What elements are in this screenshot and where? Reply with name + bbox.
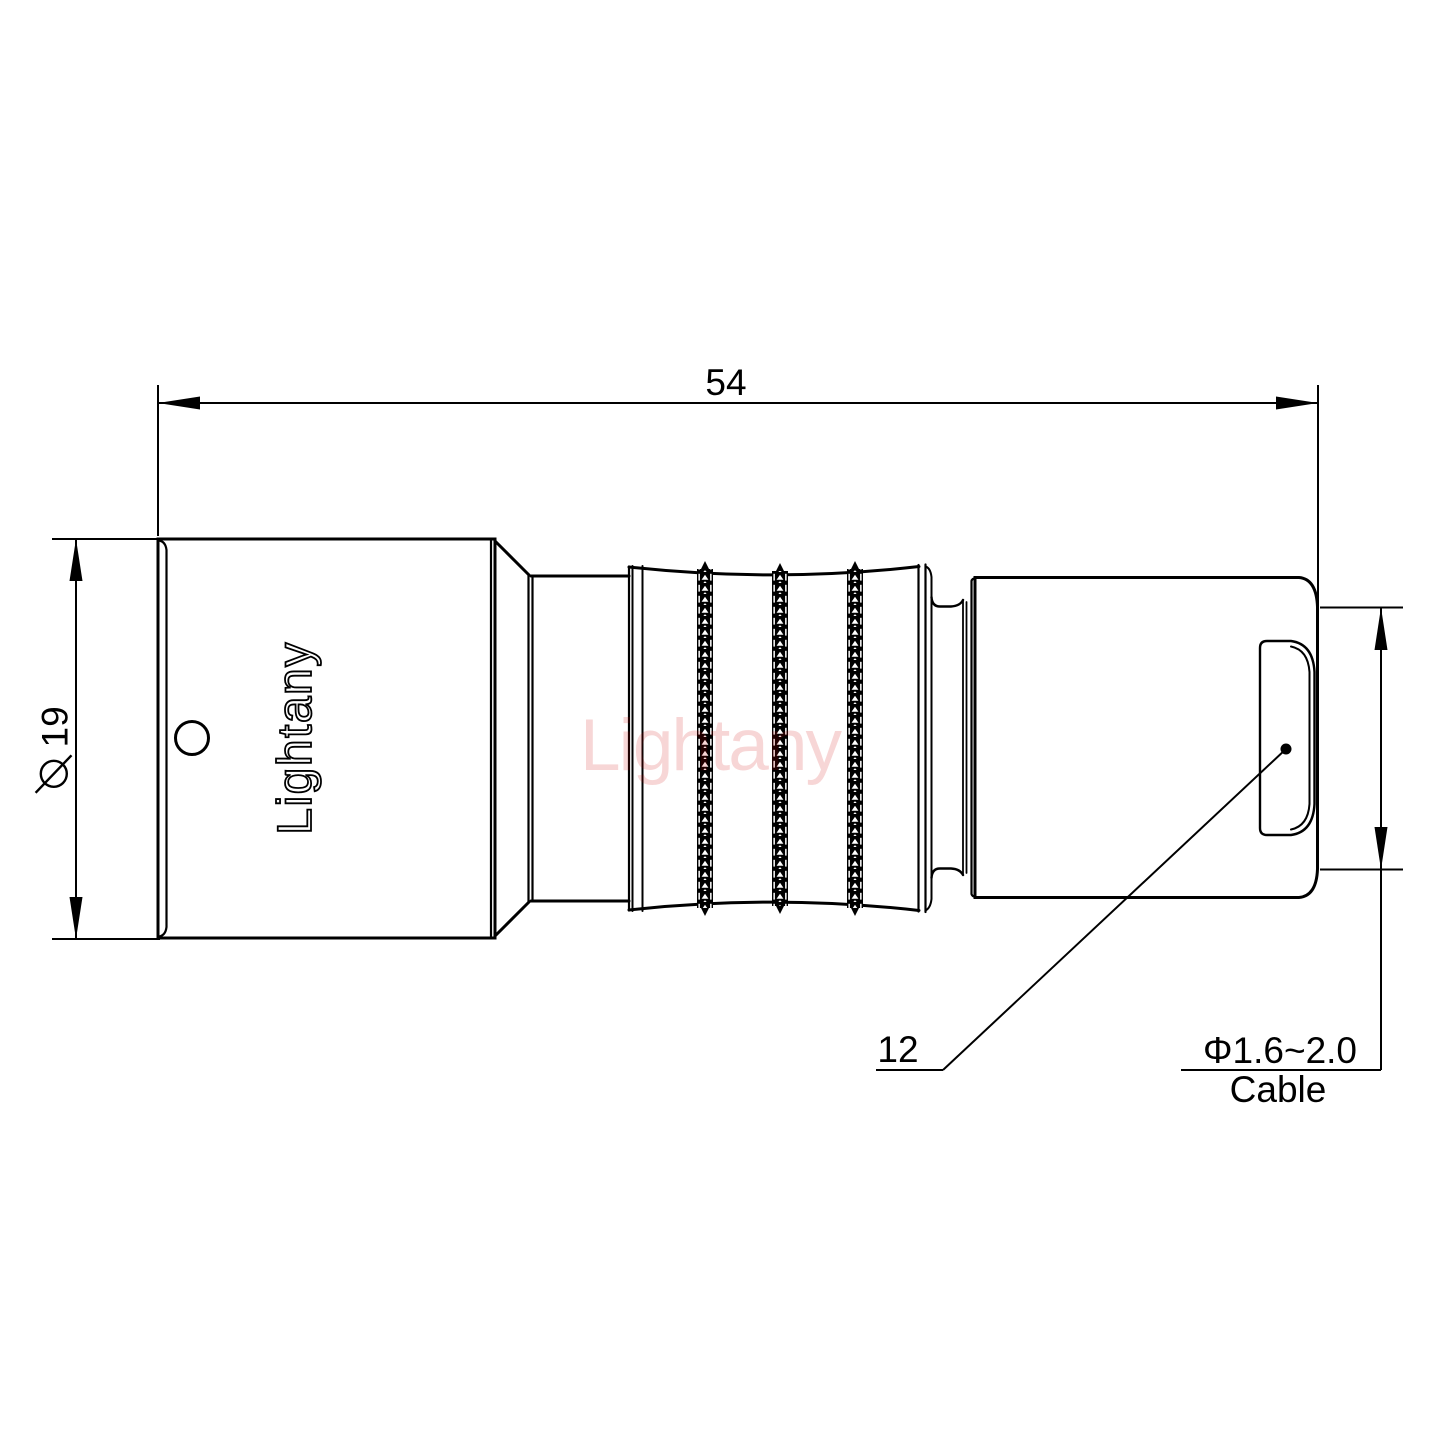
svg-text:Lightany: Lightany: [269, 641, 322, 834]
svg-text:12: 12: [877, 1029, 918, 1070]
svg-text:Φ1.6~2.0: Φ1.6~2.0: [1203, 1030, 1357, 1071]
svg-text:19: 19: [35, 706, 76, 747]
svg-text:Lightany: Lightany: [580, 705, 842, 786]
svg-text:54: 54: [705, 362, 746, 403]
svg-text:Cable: Cable: [1230, 1069, 1327, 1110]
